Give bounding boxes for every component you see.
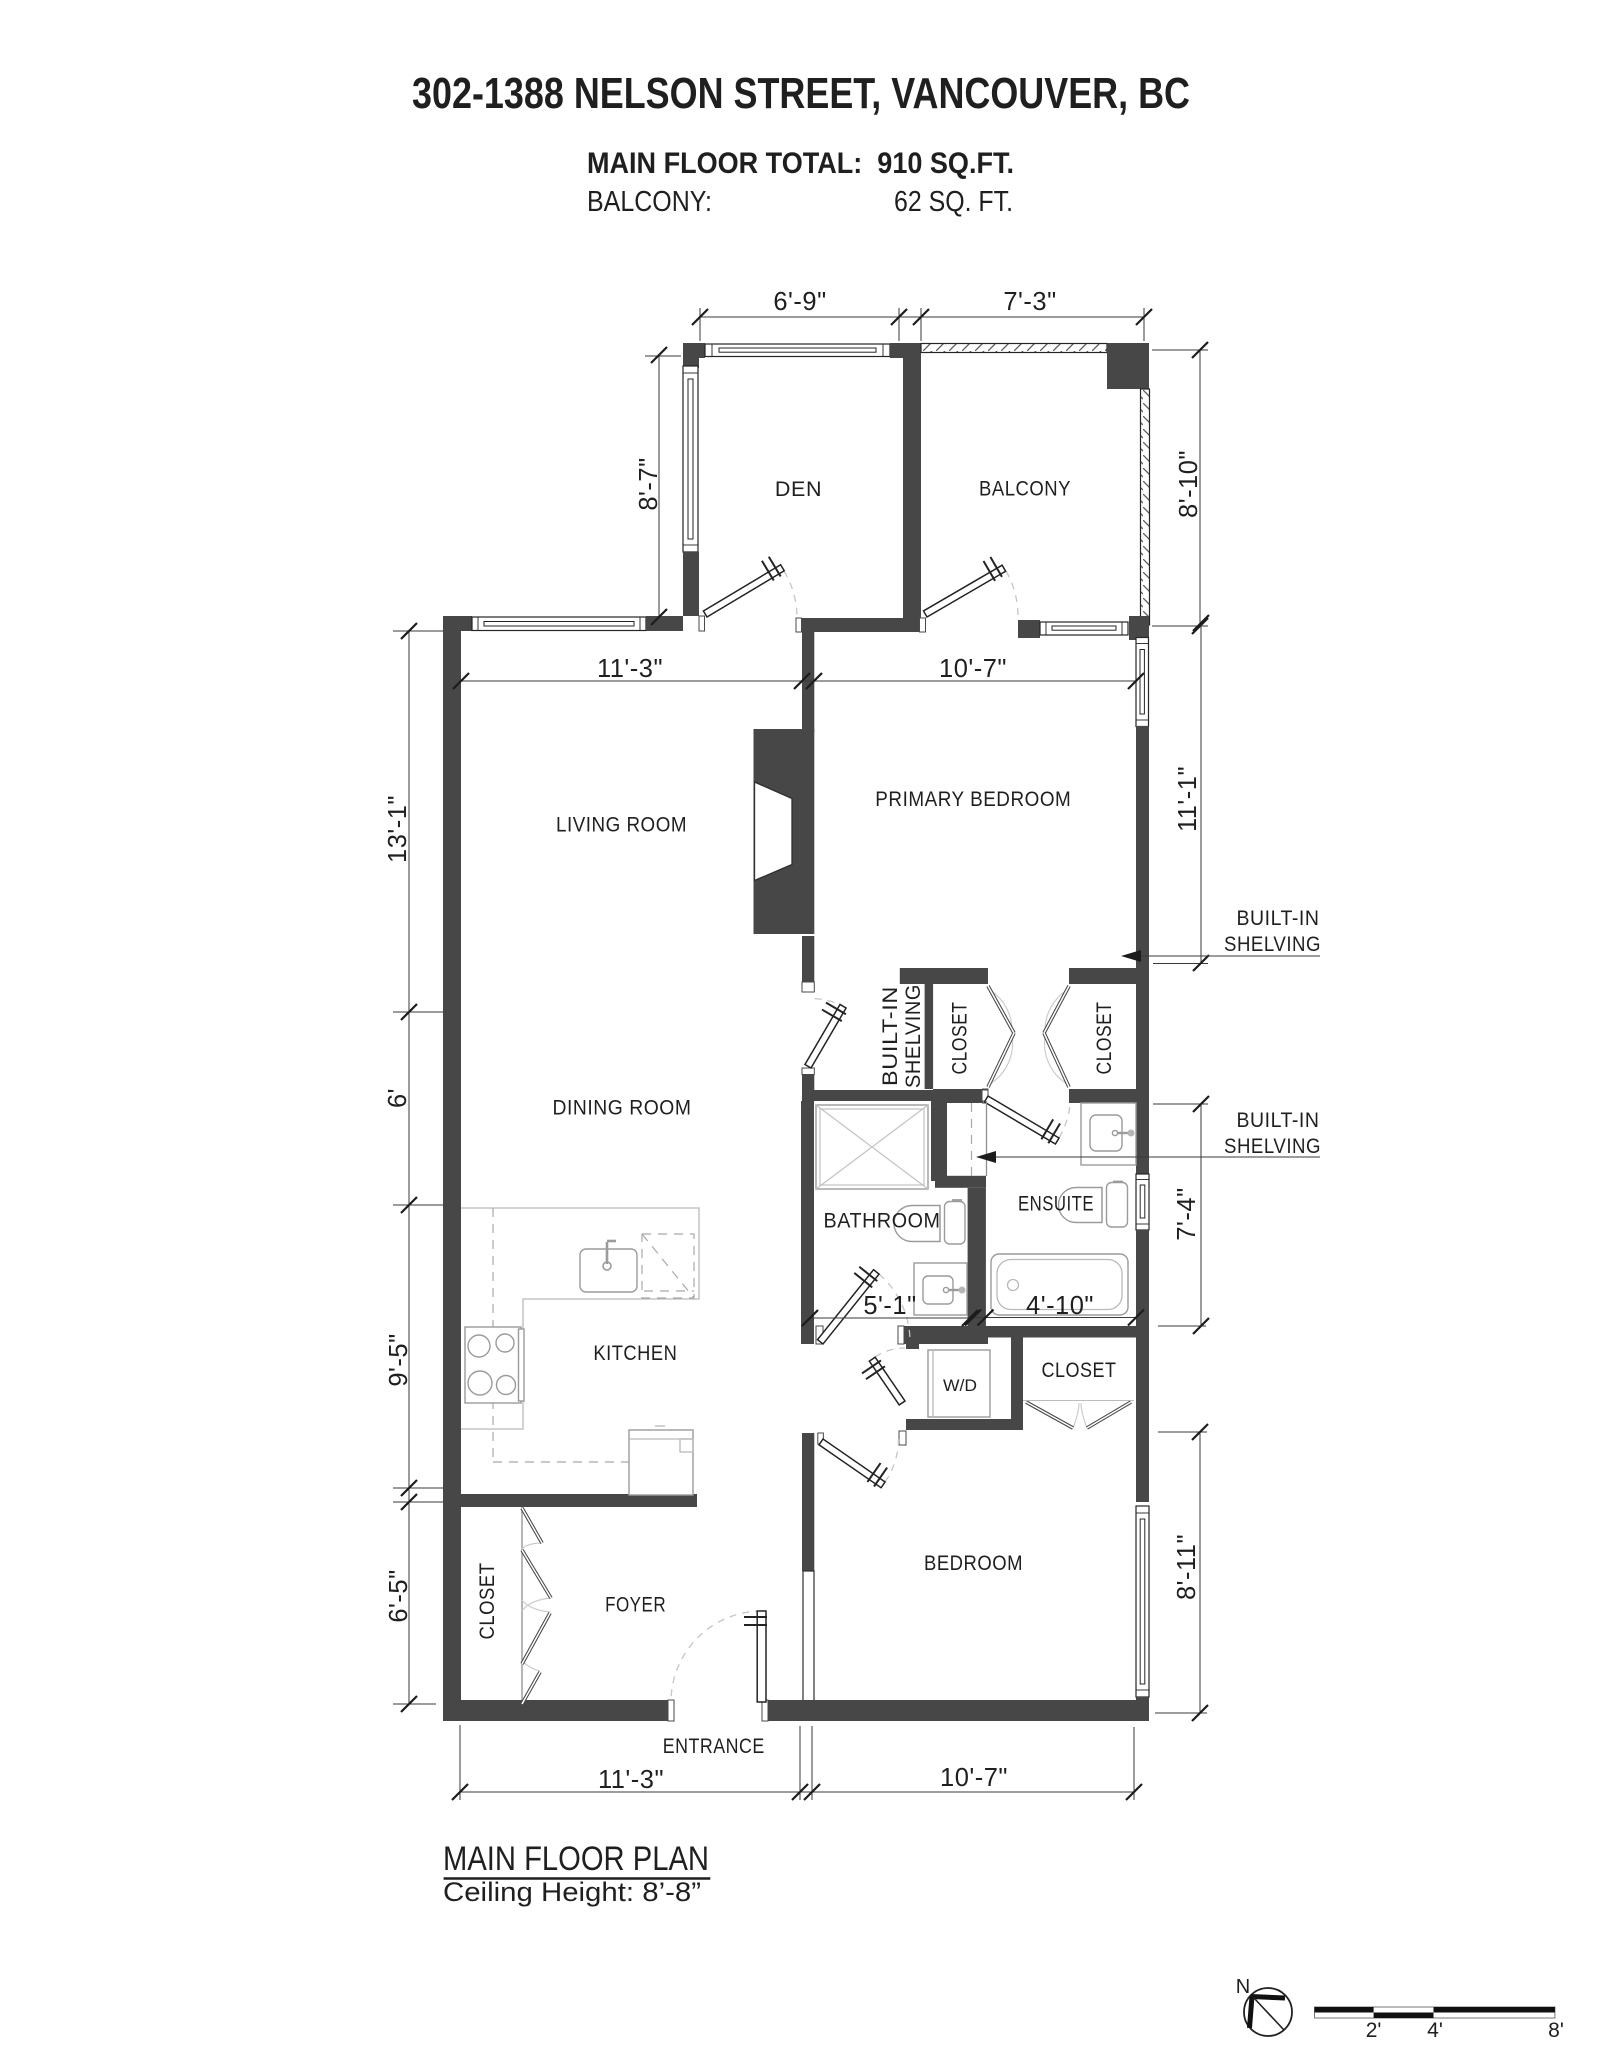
svg-text:8'-7": 8'-7" [635,457,663,510]
svg-text:7'-4": 7'-4" [1173,1187,1201,1240]
svg-text:CLOSET: CLOSET [1042,1358,1117,1382]
svg-text:CLOSET: CLOSET [475,1563,499,1640]
svg-text:9'-5": 9'-5" [385,1333,413,1386]
svg-text:8': 8' [1548,2019,1564,2042]
svg-text:2': 2' [1366,2019,1382,2042]
svg-text:N: N [1236,1976,1250,1998]
svg-text:13'-1": 13'-1" [384,795,412,863]
svg-text:11'-1": 11'-1" [1174,766,1202,832]
svg-text:FOYER: FOYER [605,1593,666,1617]
svg-text:SHELVING: SHELVING [1224,932,1321,956]
svg-text:10'-7": 10'-7" [939,655,1007,683]
svg-text:302-1388 NELSON STREET, VANCOU: 302-1388 NELSON STREET, VANCOUVER, BC [412,69,1190,118]
svg-text:62 SQ. FT.: 62 SQ. FT. [894,186,1013,218]
svg-text:5'-1": 5'-1" [863,1292,916,1320]
svg-text:DEN: DEN [775,477,822,501]
svg-text:W/D: W/D [943,1376,977,1395]
svg-text:SHELVING: SHELVING [1224,1134,1321,1158]
svg-text:PRIMARY BEDROOM: PRIMARY BEDROOM [875,787,1071,811]
svg-text:MAIN FLOOR TOTAL: 910 SQ.FT.: MAIN FLOOR TOTAL: 910 SQ.FT. [587,147,1014,180]
svg-text:Ceiling Height: 8’-8”: Ceiling Height: 8’-8” [443,1877,701,1907]
svg-text:BUILT-IN: BUILT-IN [1237,1108,1320,1132]
svg-text:8'-11": 8'-11" [1173,1534,1201,1600]
svg-text:CLOSET: CLOSET [948,1001,972,1074]
svg-text:BUILT-IN: BUILT-IN [878,986,902,1086]
svg-text:BUILT-IN: BUILT-IN [1237,906,1320,930]
svg-text:BEDROOM: BEDROOM [924,1551,1023,1575]
svg-text:CLOSET: CLOSET [1092,1002,1116,1075]
svg-text:11'-3": 11'-3" [598,1766,664,1794]
svg-text:KITCHEN: KITCHEN [593,1341,677,1365]
svg-text:10'-7": 10'-7" [940,1764,1008,1792]
svg-text:BATHROOM: BATHROOM [824,1209,941,1233]
svg-text:6': 6' [384,1088,412,1108]
svg-text:BALCONY: BALCONY [979,477,1071,501]
svg-text:4': 4' [1427,2019,1443,2042]
svg-text:7'-3": 7'-3" [1003,288,1056,316]
svg-text:MAIN FLOOR PLAN: MAIN FLOOR PLAN [443,1840,709,1878]
svg-text:LIVING ROOM: LIVING ROOM [556,813,687,837]
svg-text:ENTRANCE: ENTRANCE [663,1734,765,1758]
svg-text:8'-10": 8'-10" [1175,450,1203,518]
svg-text:4'-10": 4'-10" [1026,1292,1094,1320]
svg-text:6'-9": 6'-9" [773,288,826,316]
svg-text:BALCONY:: BALCONY: [587,186,712,218]
svg-text:11'-3": 11'-3" [597,655,663,683]
svg-text:6'-5": 6'-5" [385,1569,413,1622]
svg-text:ENSUITE: ENSUITE [1018,1192,1094,1216]
svg-text:SHELVING: SHELVING [901,984,925,1088]
svg-text:DINING ROOM: DINING ROOM [553,1096,692,1120]
